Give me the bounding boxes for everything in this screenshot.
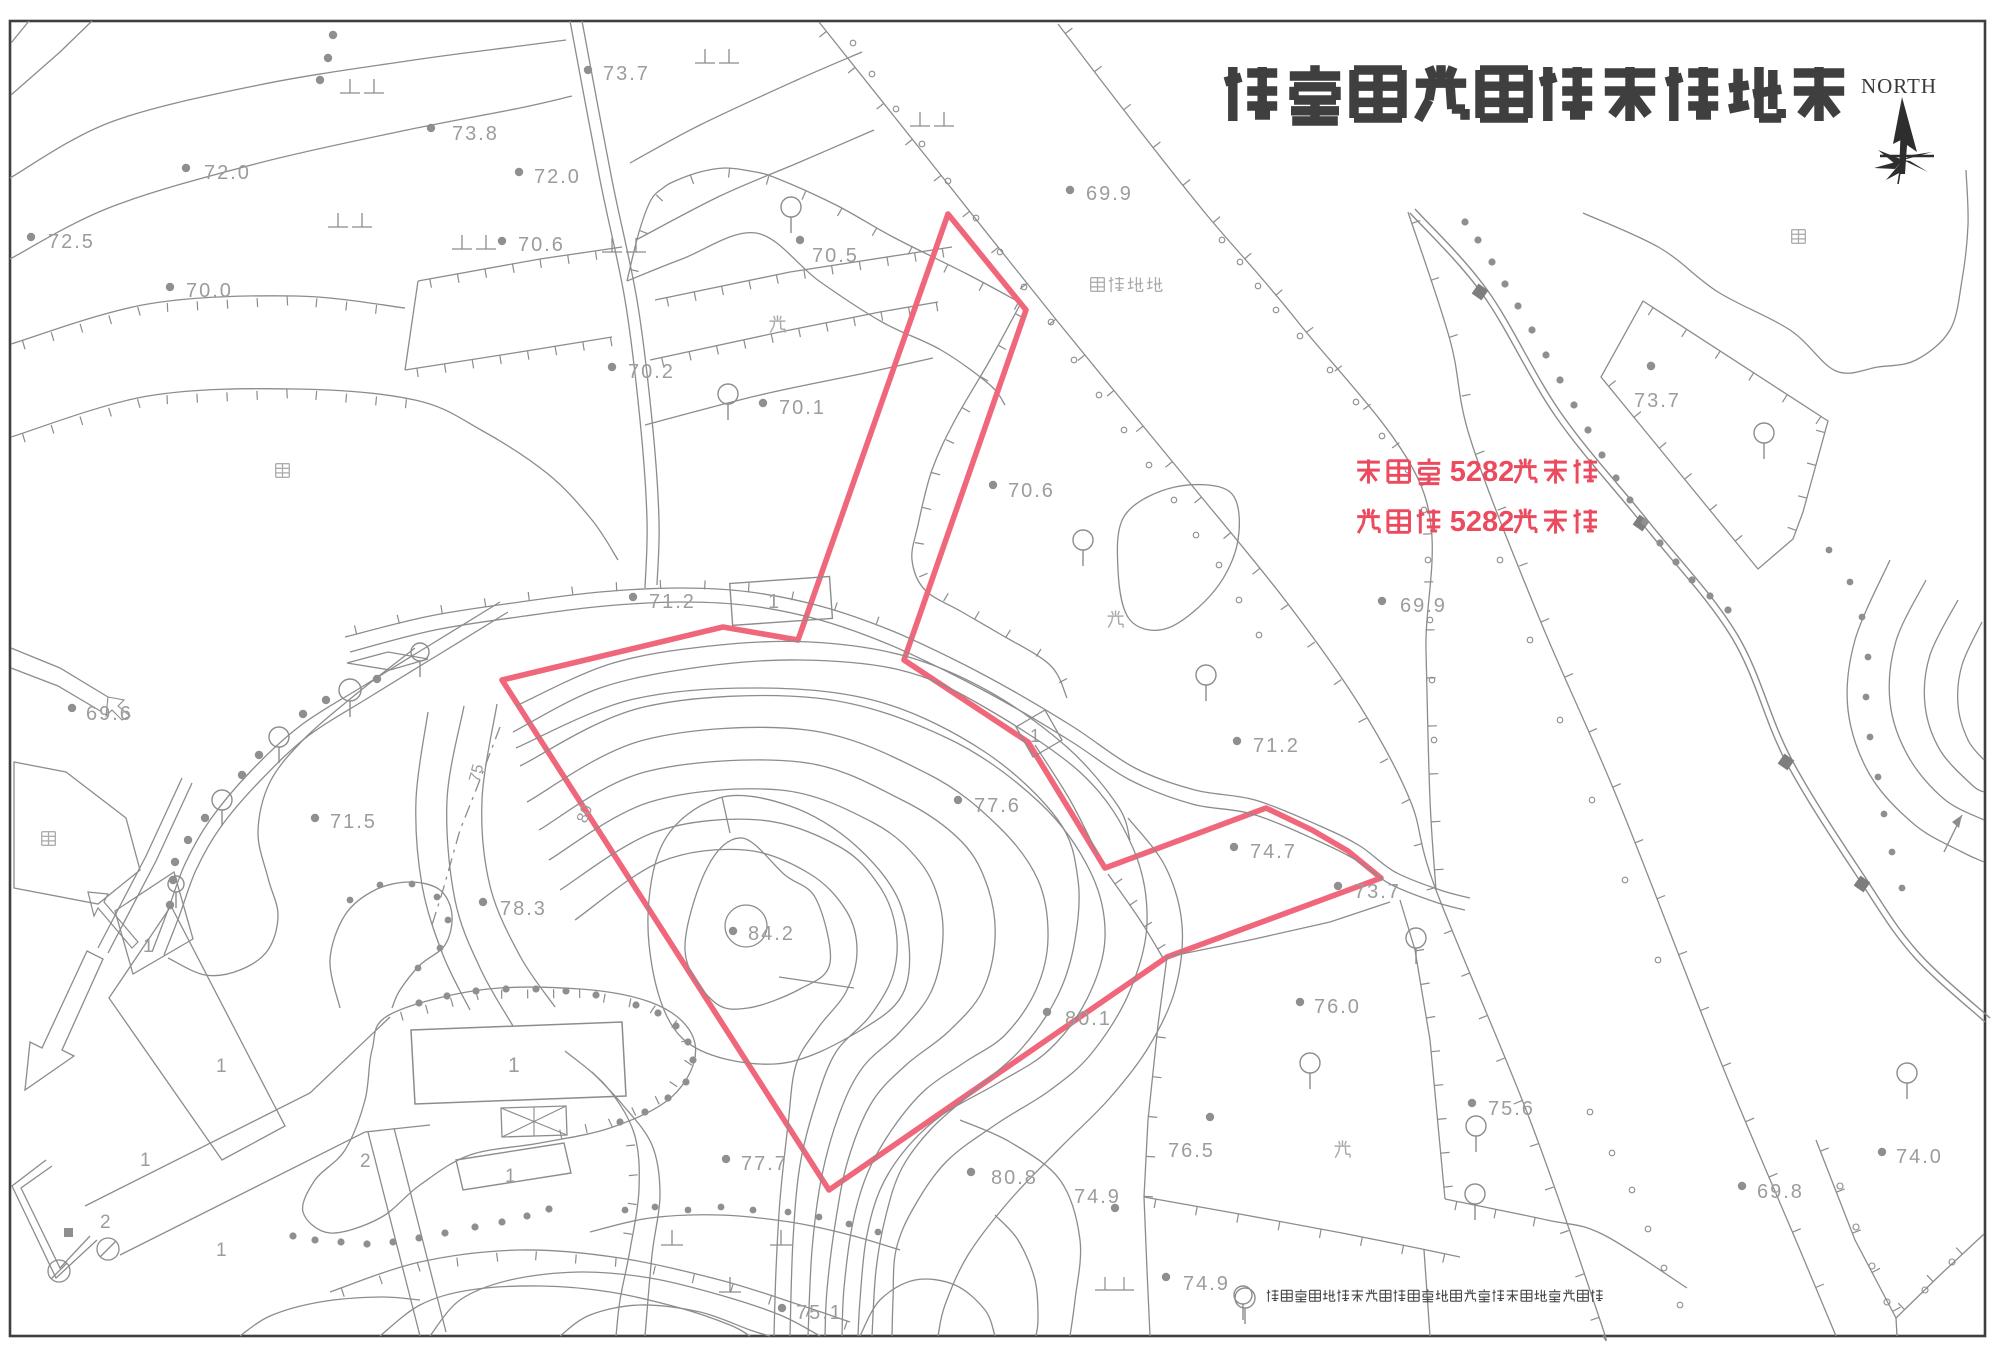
svg-text:73.8: 73.8 xyxy=(452,123,499,145)
svg-text:70.6: 70.6 xyxy=(1008,480,1055,502)
svg-text:5282: 5282 xyxy=(1450,506,1515,538)
svg-text:2: 2 xyxy=(100,1212,113,1233)
svg-text:69.9: 69.9 xyxy=(1086,183,1133,205)
svg-text:72.0: 72.0 xyxy=(204,162,251,184)
svg-text:70.6: 70.6 xyxy=(518,234,565,256)
svg-text:1: 1 xyxy=(140,1150,153,1171)
svg-text:69.6: 69.6 xyxy=(86,703,133,725)
svg-text:1: 1 xyxy=(216,1056,229,1077)
svg-text:75.1: 75.1 xyxy=(796,1302,843,1324)
svg-text:71.5: 71.5 xyxy=(330,811,377,833)
svg-text:5282: 5282 xyxy=(1450,456,1515,488)
svg-text:70.0: 70.0 xyxy=(186,280,233,302)
svg-text:69.8: 69.8 xyxy=(1757,1181,1804,1203)
svg-text:73.7: 73.7 xyxy=(603,63,650,85)
svg-text:69.9: 69.9 xyxy=(1400,595,1447,617)
svg-text:80.8: 80.8 xyxy=(991,1167,1038,1189)
svg-text:70.5: 70.5 xyxy=(812,245,859,267)
svg-text:70.1: 70.1 xyxy=(779,397,826,419)
svg-text:78.3: 78.3 xyxy=(500,898,547,920)
svg-text:2: 2 xyxy=(360,1151,373,1172)
svg-text:1: 1 xyxy=(505,1166,518,1187)
svg-text:71.2: 71.2 xyxy=(1253,735,1300,757)
svg-text:NORTH: NORTH xyxy=(1861,74,1937,98)
svg-text:70.2: 70.2 xyxy=(628,361,675,383)
svg-text:77.6: 77.6 xyxy=(974,795,1021,817)
svg-text:74.7: 74.7 xyxy=(1250,841,1297,863)
svg-text:72.0: 72.0 xyxy=(534,166,581,188)
svg-text:77.7: 77.7 xyxy=(741,1153,788,1175)
svg-text:71.2: 71.2 xyxy=(649,591,696,613)
svg-text:75.6: 75.6 xyxy=(1488,1098,1535,1120)
svg-text:73.7: 73.7 xyxy=(1354,881,1401,903)
svg-text:1: 1 xyxy=(508,1054,522,1077)
svg-text:1: 1 xyxy=(216,1240,229,1261)
svg-text:72.5: 72.5 xyxy=(48,231,95,253)
svg-text:74.9: 74.9 xyxy=(1183,1273,1230,1295)
svg-text:84.2: 84.2 xyxy=(748,923,795,945)
svg-text:76.5: 76.5 xyxy=(1168,1140,1215,1162)
svg-text:1: 1 xyxy=(768,591,781,613)
svg-text:73.7: 73.7 xyxy=(1634,390,1681,412)
svg-text:80.1: 80.1 xyxy=(1065,1008,1112,1030)
svg-text:74.9: 74.9 xyxy=(1074,1186,1121,1208)
svg-text:74.0: 74.0 xyxy=(1896,1146,1943,1168)
svg-text:76.0: 76.0 xyxy=(1314,996,1361,1018)
